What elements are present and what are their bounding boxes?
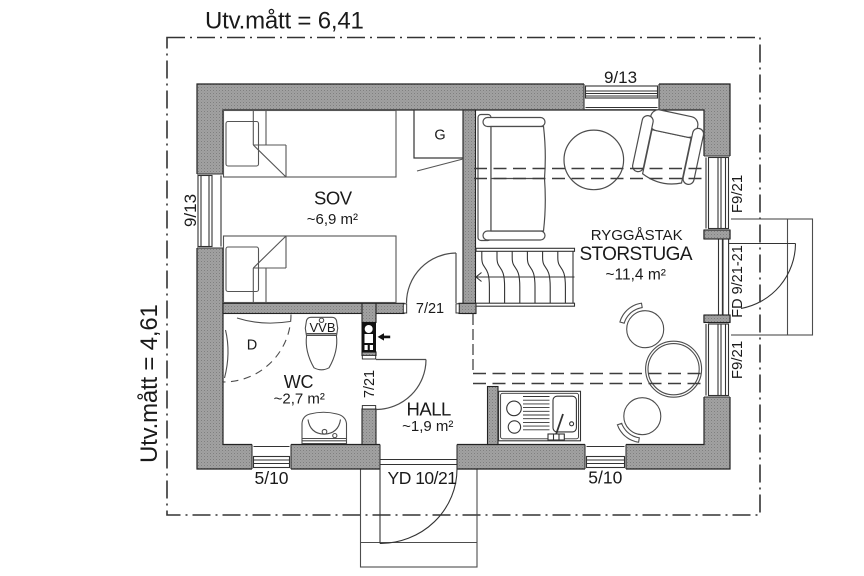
- svg-text:F9/21: F9/21: [729, 175, 746, 213]
- svg-text:~1,9 m²: ~1,9 m²: [402, 418, 453, 435]
- svg-text:STORSTUGA: STORSTUGA: [579, 244, 692, 265]
- svg-text:Utv.mått = 4,61: Utv.mått = 4,61: [136, 304, 163, 463]
- svg-text:9/13: 9/13: [604, 68, 637, 87]
- svg-text:~2,7 m²: ~2,7 m²: [274, 390, 325, 407]
- svg-text:WC: WC: [284, 372, 314, 392]
- svg-text:7/21: 7/21: [416, 301, 444, 317]
- svg-text:~6,9 m²: ~6,9 m²: [307, 211, 358, 228]
- svg-text:YD 10/21: YD 10/21: [388, 468, 457, 488]
- svg-text:D: D: [247, 338, 257, 354]
- svg-text:Utv.mått = 6,41: Utv.mått = 6,41: [205, 8, 364, 35]
- svg-text:7/21: 7/21: [362, 370, 378, 398]
- svg-text:5/10: 5/10: [254, 468, 288, 488]
- svg-text:HALL: HALL: [407, 399, 451, 420]
- svg-text:G: G: [434, 128, 445, 144]
- svg-text:VVB: VVB: [309, 320, 335, 335]
- svg-text:F9/21: F9/21: [729, 341, 746, 379]
- svg-text:SOV: SOV: [314, 188, 353, 209]
- svg-text:RYGGÅSTAK: RYGGÅSTAK: [591, 227, 683, 244]
- svg-text:FD 9/21-21: FD 9/21-21: [730, 245, 746, 318]
- svg-text:~11,4 m²: ~11,4 m²: [605, 267, 665, 284]
- svg-text:5/10: 5/10: [588, 468, 622, 488]
- svg-text:9/13: 9/13: [181, 194, 200, 227]
